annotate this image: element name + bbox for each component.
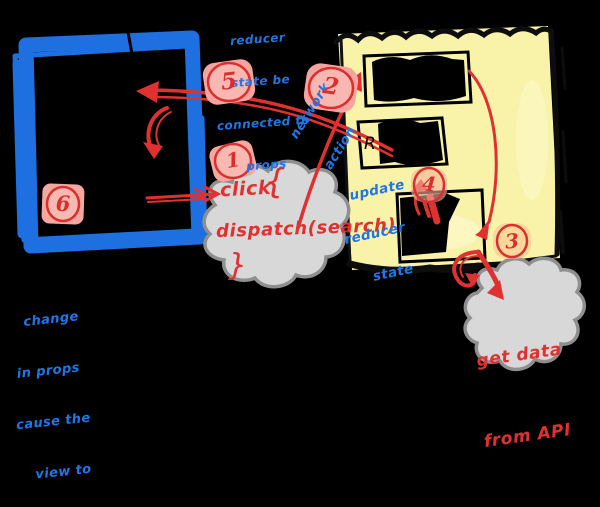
sketch-layer <box>0 0 600 507</box>
whiteboard-sketch: reducer state be connected to props netw… <box>0 0 600 507</box>
step-badge-2: 2 <box>313 71 348 102</box>
store-row-redacted-1 <box>364 52 471 106</box>
step-badge-4: 4 <box>412 171 446 198</box>
step-badge-6: 6 <box>47 191 79 216</box>
arrow-view-to-click <box>147 187 218 202</box>
api-cloud-shape <box>465 258 584 369</box>
step-badge-3: 3 <box>495 228 529 255</box>
step-badge-5: 5 <box>212 66 247 96</box>
arrow-rerender-loop <box>143 108 171 159</box>
